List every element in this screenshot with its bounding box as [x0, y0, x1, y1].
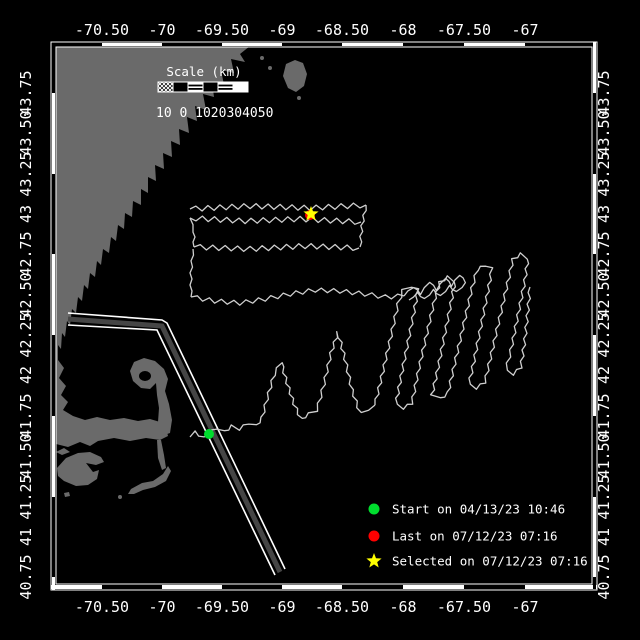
- latitude-label-right: 41.50: [595, 433, 613, 478]
- longitude-label-bottom: -67.50: [437, 598, 491, 616]
- scale-bar-tick-labels: 10 0 1020304050: [156, 106, 273, 121]
- island-dot: [297, 96, 301, 100]
- latitude-label-left: 41: [17, 528, 35, 546]
- latitude-label-left: 41.25: [17, 474, 35, 519]
- latitude-label-left: 43.50: [17, 110, 35, 155]
- longitude-label-top: -68: [389, 21, 416, 39]
- island-dot: [218, 56, 222, 60]
- longitude-label-bottom: -70.50: [75, 598, 129, 616]
- legend-selected-label: Selected on 07/12/23 07:16: [392, 554, 588, 569]
- map-legend: Start on 04/13/23 10:46 Last on 07/12/23…: [366, 502, 587, 569]
- island-dot: [148, 128, 152, 132]
- latitude-label-left: 42: [17, 366, 35, 384]
- latitude-label-left: 43: [17, 205, 35, 223]
- longitude-label-top: -70: [148, 21, 175, 39]
- longitude-label-bottom: -70: [148, 598, 175, 616]
- scale-bar-title: Scale (km): [166, 64, 241, 79]
- latitude-label-left: 42.25: [17, 312, 35, 357]
- longitude-label-bottom: -69: [268, 598, 295, 616]
- longitude-label-bottom: -67: [511, 598, 538, 616]
- latitude-label-right: 41: [595, 528, 613, 546]
- legend-start-label: Start on 04/13/23 10:46: [392, 502, 565, 517]
- latitude-label-right: 43: [595, 205, 613, 223]
- island-dot: [268, 66, 272, 70]
- longitude-label-top: -68.50: [315, 21, 369, 39]
- legend-green-dot-icon: [369, 504, 380, 515]
- latitude-label-right: 43.50: [595, 110, 613, 155]
- map-canvas[interactable]: -70.50-70.50-70-70-69.50-69.50-69-69-68.…: [0, 0, 640, 640]
- latitude-label-left: 40.75: [17, 554, 35, 599]
- latitude-label-left: 41.75: [17, 393, 35, 438]
- longitude-label-top: -70.50: [75, 21, 129, 39]
- latitude-label-right: 41.75: [595, 393, 613, 438]
- latitude-label-right: 42.50: [595, 272, 613, 317]
- latitude-label-right: 41.25: [595, 474, 613, 519]
- glider-track-map-window: -70.50-70.50-70-70-69.50-69.50-69-69-68.…: [0, 0, 640, 640]
- latitude-label-left: 42.75: [17, 231, 35, 276]
- longitude-label-bottom: -68.50: [315, 598, 369, 616]
- longitude-label-bottom: -68: [389, 598, 416, 616]
- provincetown-harbor: [139, 371, 151, 381]
- longitude-label-top: -69: [268, 21, 295, 39]
- island-dot: [118, 495, 122, 499]
- island-dot: [260, 56, 264, 60]
- longitude-label-bottom: -69.50: [195, 598, 249, 616]
- latitude-label-left: 42.50: [17, 272, 35, 317]
- longitude-label-top: -67: [511, 21, 538, 39]
- start-position-marker[interactable]: [204, 429, 214, 439]
- latitude-label-right: 40.75: [595, 554, 613, 599]
- latitude-label-right: 43.75: [595, 70, 613, 115]
- scale-bar-cells: [158, 82, 248, 92]
- latitude-label-right: 42.75: [595, 231, 613, 276]
- latitude-label-right: 42: [595, 366, 613, 384]
- latitude-label-left: 43.25: [17, 151, 35, 196]
- legend-red-dot-icon: [369, 531, 380, 542]
- latitude-label-right: 43.25: [595, 151, 613, 196]
- latitude-label-left: 43.75: [17, 70, 35, 115]
- longitude-label-top: -69.50: [195, 21, 249, 39]
- latitude-label-left: 41.50: [17, 433, 35, 478]
- longitude-label-top: -67.50: [437, 21, 491, 39]
- latitude-label-right: 42.25: [595, 312, 613, 357]
- legend-last-label: Last on 07/12/23 07:16: [392, 529, 558, 544]
